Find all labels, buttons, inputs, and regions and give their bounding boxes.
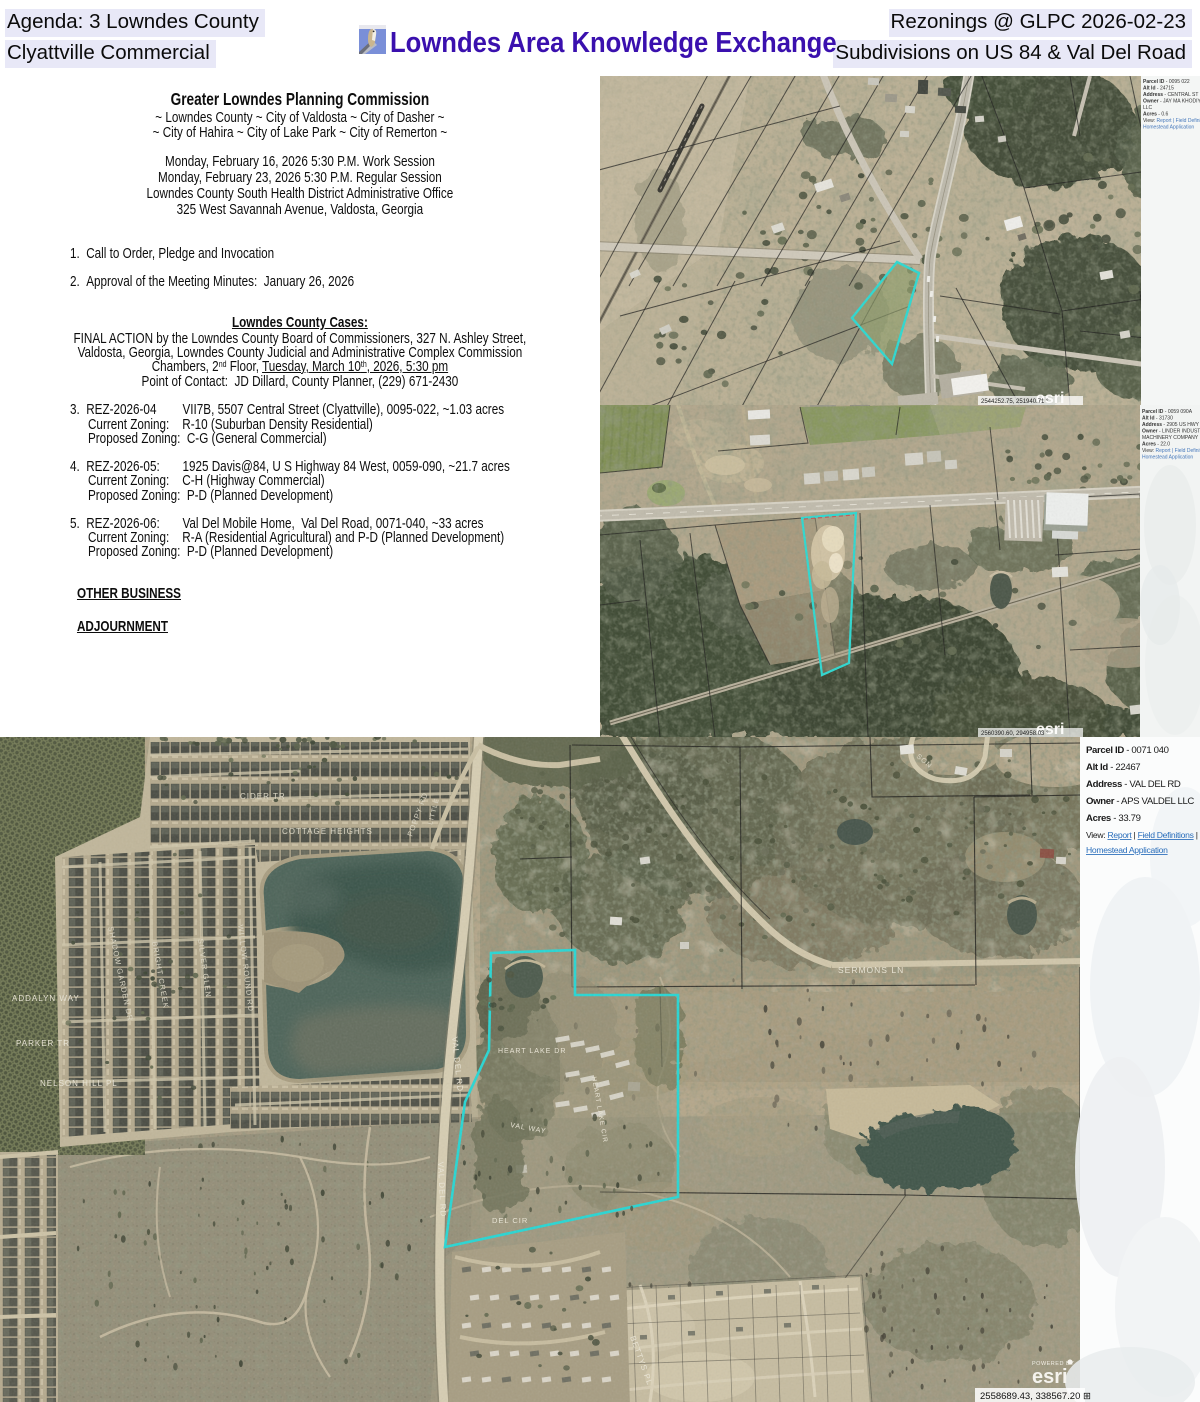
svg-text:MACHINERY COMPANY: MACHINERY COMPANY	[1142, 435, 1199, 441]
svg-text:esri: esri	[1032, 1366, 1068, 1388]
svg-text:View: Report | Field Definitio: View: Report | Field Definitions |	[1142, 448, 1200, 454]
svg-text:Homestead Application: Homestead Application	[1143, 125, 1194, 131]
svg-text:Alt Id - 31730: Alt Id - 31730	[1142, 416, 1173, 422]
svg-text:Address - 2905 US HWY 84 W: Address - 2905 US HWY 84 W	[1142, 422, 1200, 428]
svg-text:Acres - 0.6: Acres - 0.6	[1143, 112, 1169, 118]
svg-text:Owner - APS VALDEL LLC: Owner - APS VALDEL LLC	[1086, 796, 1194, 807]
svg-text:Acres - 22.0: Acres - 22.0	[1142, 442, 1170, 448]
svg-text:LLC: LLC	[1143, 105, 1153, 111]
svg-text:Address - VAL DEL RD: Address - VAL DEL RD	[1086, 779, 1181, 790]
svg-text:Acres - 33.79: Acres - 33.79	[1086, 813, 1141, 824]
svg-text:2558689.43, 338567.20 ⊞: 2558689.43, 338567.20 ⊞	[980, 1391, 1091, 1402]
svg-text:Homestead Application: Homestead Application	[1142, 455, 1193, 461]
svg-text:Alt Id - 22467: Alt Id - 22467	[1086, 762, 1140, 773]
svg-text:Owner - JAY MA KHODIYAR: Owner - JAY MA KHODIYAR	[1143, 99, 1200, 105]
svg-text:Address - CENTRAL ST: Address - CENTRAL ST	[1143, 92, 1198, 98]
svg-text:Alt Id - 24715: Alt Id - 24715	[1143, 86, 1174, 92]
svg-text:View: Report | Field Definitio: View: Report | Field Definitions|	[1143, 118, 1200, 124]
svg-text:Parcel ID - 0059 090A: Parcel ID - 0059 090A	[1142, 409, 1193, 415]
svg-text:Owner - LINDER INDUSTRIAL: Owner - LINDER INDUSTRIAL	[1142, 429, 1200, 435]
svg-text:View: Report | Field Definitio: View: Report | Field Definitions |	[1086, 830, 1198, 840]
svg-text:Homestead Application: Homestead Application	[1086, 845, 1168, 855]
svg-text:Parcel ID - 0071 040: Parcel ID - 0071 040	[1086, 745, 1169, 756]
svg-text:Parcel ID - 0095 022: Parcel ID - 0095 022	[1143, 79, 1190, 85]
